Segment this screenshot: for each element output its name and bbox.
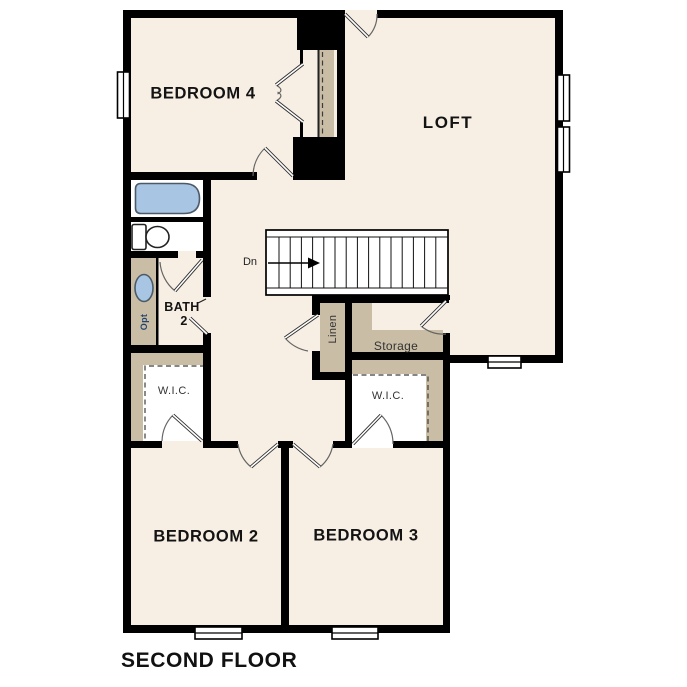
window-loft-bottom <box>488 356 521 368</box>
window-bedroom2 <box>195 627 242 639</box>
staircase <box>266 230 448 295</box>
window-loft-lower <box>558 127 570 172</box>
chase-lower <box>293 137 345 180</box>
toilet-icon <box>132 225 169 250</box>
room-label-bedroom2: BEDROOM 2 <box>153 528 258 547</box>
room-label-bedroom4: BEDROOM 4 <box>150 85 255 104</box>
room-label-linen: Linen <box>327 315 339 344</box>
window-bedroom4 <box>118 72 130 118</box>
room-label-bath2-line2: 2 <box>180 314 187 328</box>
room-label-bath2-line1: BATH <box>164 300 199 314</box>
room-label-wic-left: W.I.C. <box>158 385 190 397</box>
vanity-option-label: Opt <box>139 314 149 330</box>
window-bedroom3 <box>332 627 378 639</box>
room-label-wic-right: W.I.C. <box>372 390 404 402</box>
room-label-loft: LOFT <box>423 113 473 133</box>
bedroom4-closet-shelf <box>318 50 334 137</box>
bathtub-icon <box>136 184 200 214</box>
window-loft-upper <box>558 75 570 121</box>
room-label-storage: Storage <box>374 339 418 353</box>
floor-plan-drawing <box>0 0 687 687</box>
stairs-direction-label: Dn <box>243 256 257 268</box>
floor-plan-canvas: BEDROOM 4 LOFT BATH 2 W.I.C. W.I.C. Line… <box>0 0 687 687</box>
sink-icon <box>135 275 153 302</box>
plan-title: SECOND FLOOR <box>121 649 297 673</box>
room-label-bedroom3: BEDROOM 3 <box>313 527 418 546</box>
